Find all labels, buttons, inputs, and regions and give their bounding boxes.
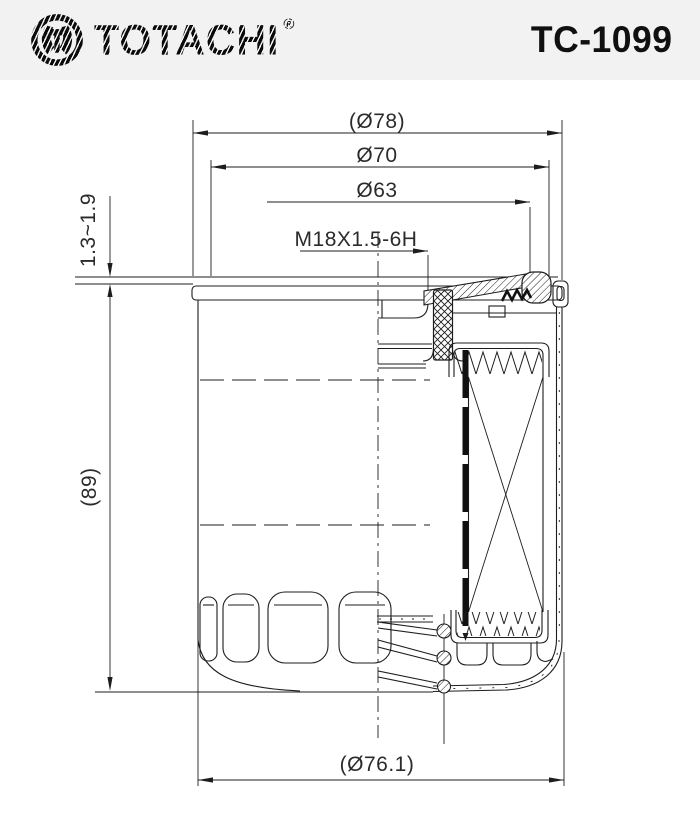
filter-element [449,343,549,643]
dim-body-diameter-label: Ø70 [356,144,397,167]
dim-base-diameter-label: (Ø76.1) [340,753,415,776]
brand-logo: TOTACHI ® [28,8,298,72]
brand-name: TOTACHI [94,19,279,62]
brand-emblem-icon [28,11,86,69]
registered-mark: ® [283,16,294,33]
grip-flutes [200,592,391,663]
dimension-labels: (Ø78) Ø70 Ø63 M18X1.5-6H 1.3~1.9 (89) (Ø… [77,110,417,776]
filter-section-drawing: (Ø78) Ø70 Ø63 M18X1.5-6H 1.3~1.9 (89) (Ø… [0,80,700,840]
part-number: TC-1099 [530,19,672,61]
dim-overall-height-label: (89) [78,467,101,506]
header-bar: TOTACHI ® TC-1099 [0,0,700,80]
dim-seam-thickness-label: 1.3~1.9 [77,193,100,267]
technical-drawing-area: (Ø78) Ø70 Ø63 M18X1.5-6H 1.3~1.9 (89) (Ø… [0,80,700,840]
dim-thread-spec-label: M18X1.5-6H [295,228,418,251]
dim-gasket-diameter-label: Ø63 [356,179,397,202]
extension-lines [75,120,564,786]
dim-outer-diameter-label: (Ø78) [349,110,405,133]
page: TOTACHI ® TC-1099 [0,0,700,840]
